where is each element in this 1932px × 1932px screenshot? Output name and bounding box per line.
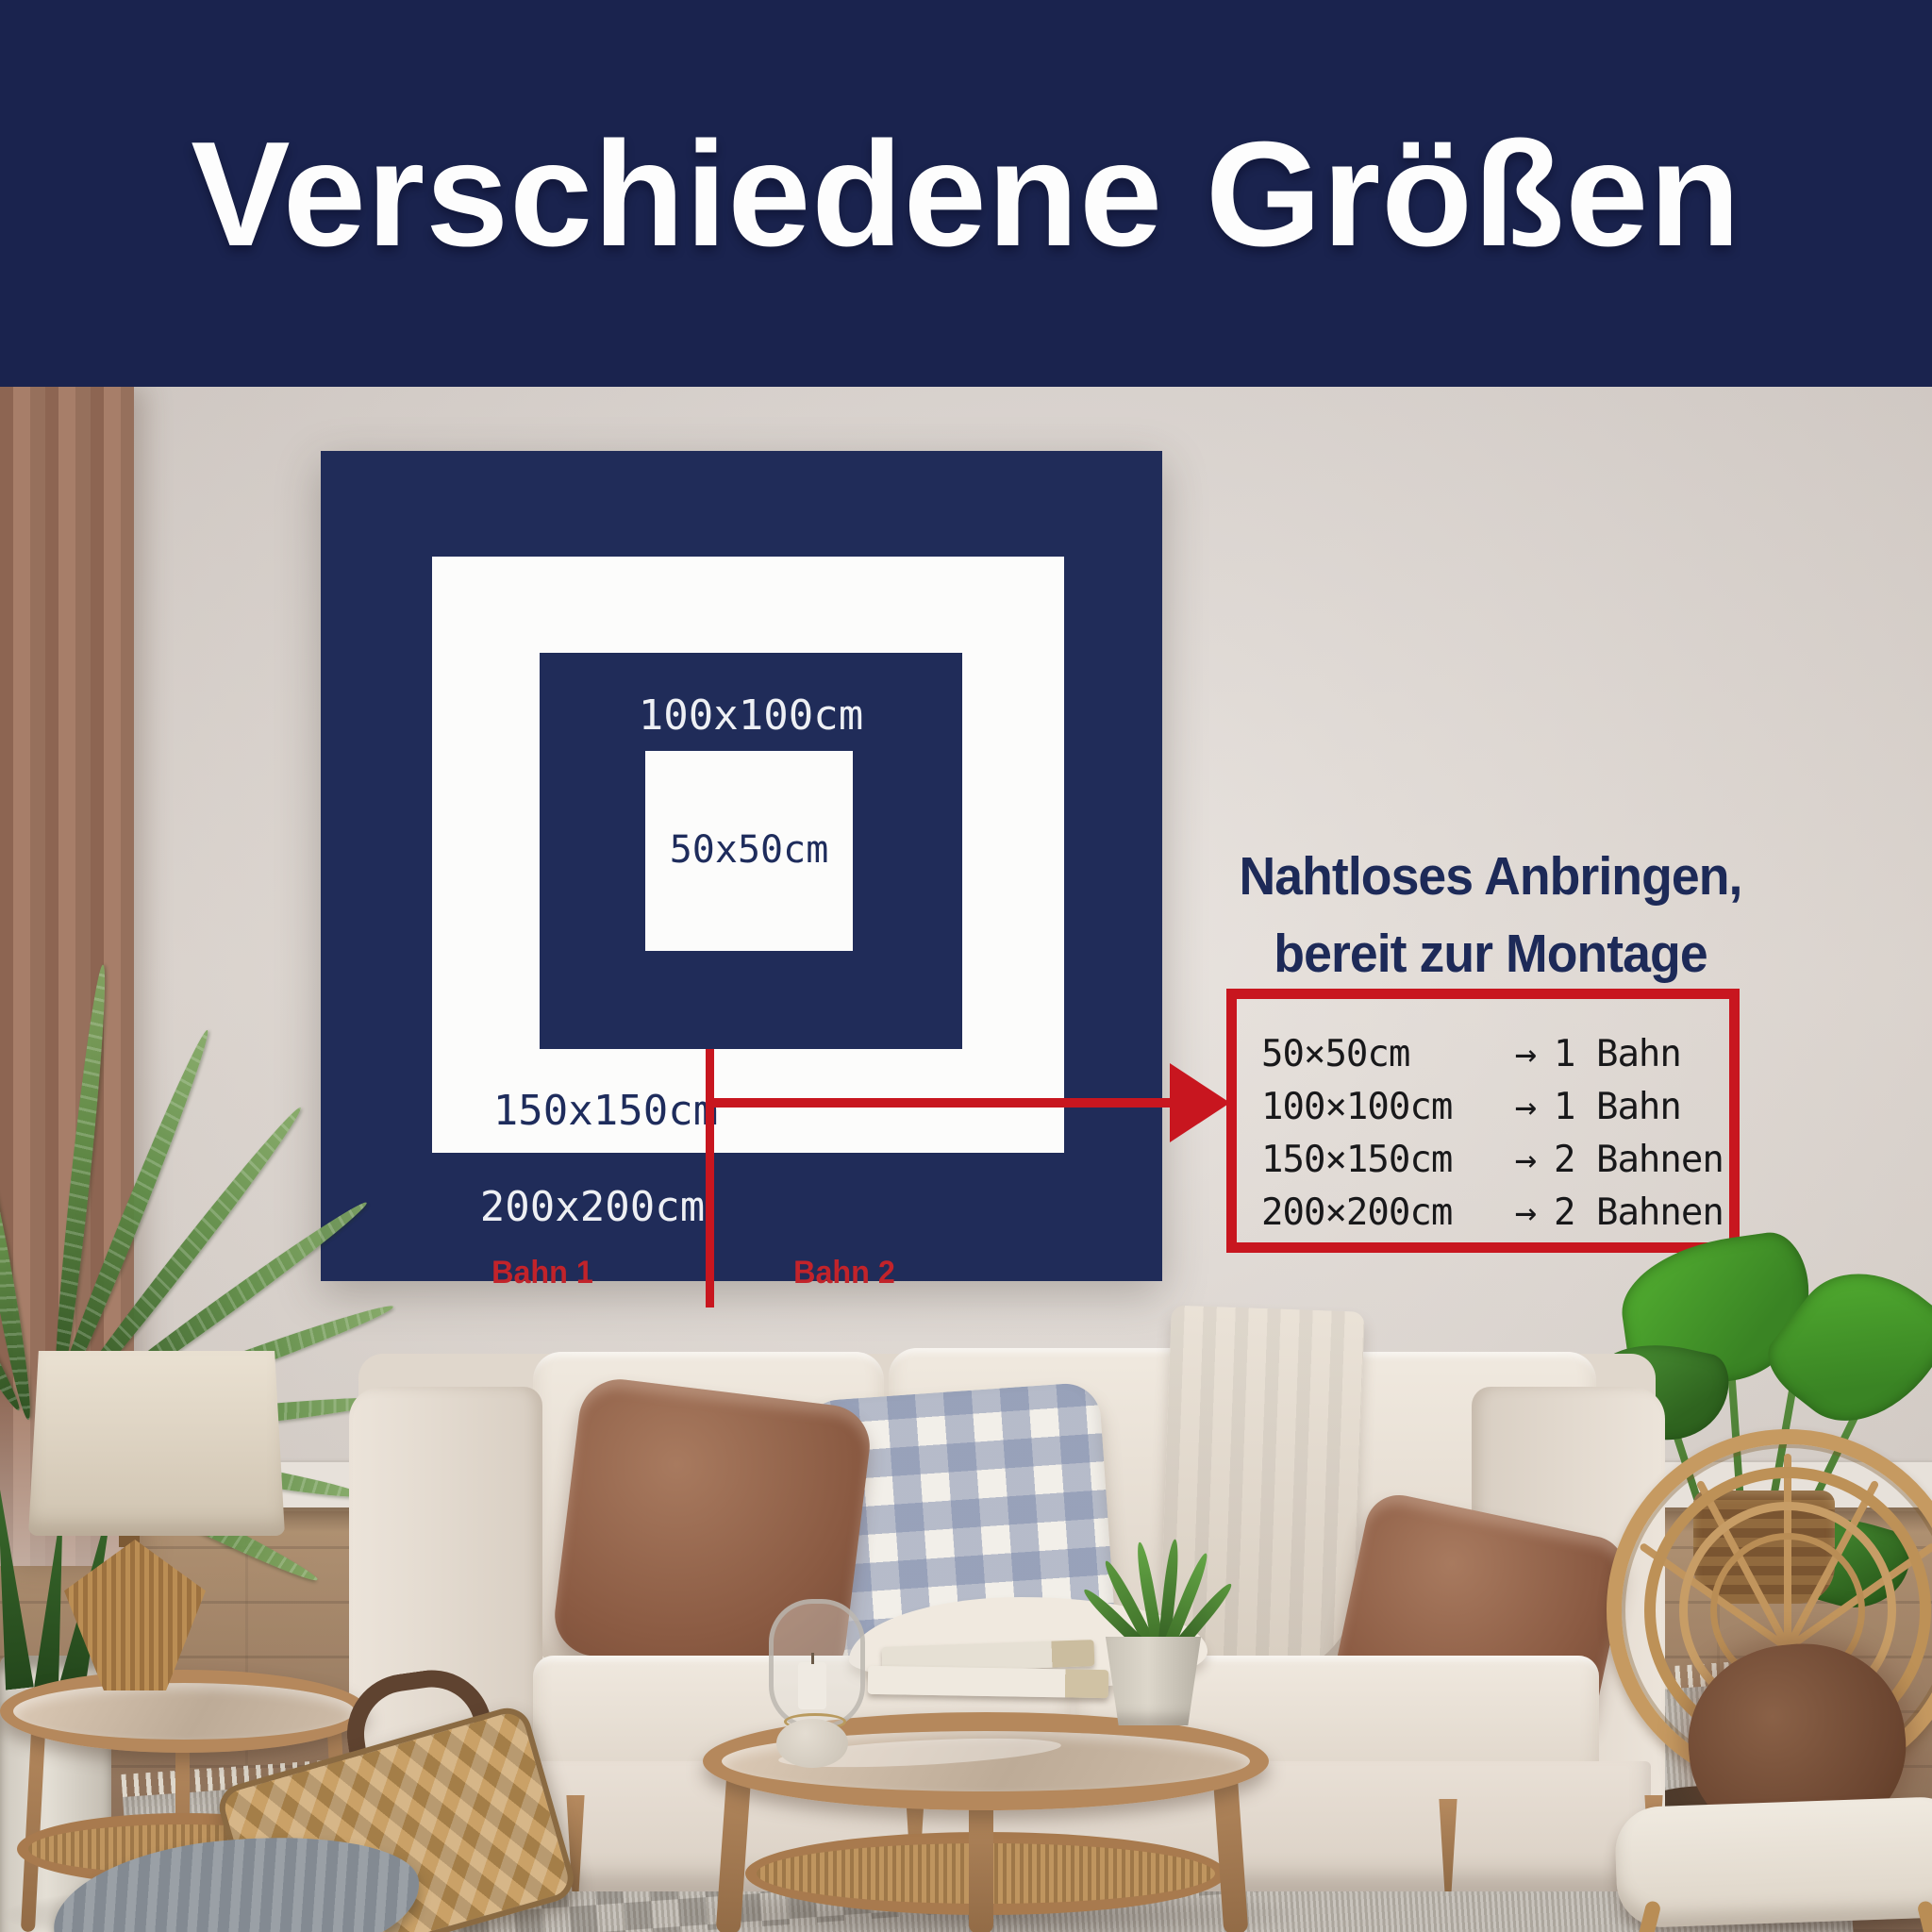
info-row-size: 150×150cm (1261, 1139, 1497, 1181)
arrow-icon: → (1497, 1033, 1554, 1075)
info-row-size: 50×50cm (1261, 1033, 1497, 1075)
info-heading-line2: bereit zur Montage (1203, 915, 1779, 992)
arrow-icon: → (1497, 1139, 1554, 1181)
info-box: 50×50cm → 1 Bahn 100×100cm → 1 Bahn 150×… (1226, 989, 1740, 1253)
candle (798, 1662, 826, 1709)
table-lamp (28, 1351, 292, 1696)
size-label-100: 100x100cm (540, 691, 962, 740)
info-row: 50×50cm → 1 Bahn (1261, 1027, 1729, 1080)
info-rows: 50×50cm → 1 Bahn 100×100cm → 1 Bahn 150×… (1237, 999, 1729, 1239)
page-title: Verschiedene Größen (0, 0, 1932, 387)
connector-line (706, 1098, 1174, 1108)
info-row-size: 200×200cm (1261, 1191, 1497, 1234)
red-arrow-icon (1170, 1063, 1230, 1142)
table-leg (21, 1711, 46, 1932)
candle-base (776, 1719, 848, 1768)
rattan-chair (1590, 1429, 1932, 1932)
info-row-result: 1 Bahn (1554, 1086, 1681, 1128)
info-heading-line1: Nahtloses Anbringen, (1203, 838, 1779, 915)
plant-pot-small (1099, 1637, 1207, 1725)
lamp-base (64, 1540, 206, 1690)
bahn2-label: Bahn 2 (750, 1255, 939, 1291)
bahn-divider-line (706, 1049, 714, 1307)
table-plant (1071, 1533, 1241, 1651)
info-row-result: 2 Bahnen (1554, 1139, 1724, 1181)
info-row-size: 100×100cm (1261, 1086, 1497, 1128)
arrow-icon: → (1497, 1086, 1554, 1128)
product-size-infographic: Verschiedene Größen 100x100cm 50x50cm 15… (0, 0, 1932, 1932)
candle-holder (769, 1599, 865, 1729)
candle-wick (811, 1653, 814, 1664)
info-heading: Nahtloses Anbringen, bereit zur Montage (1203, 838, 1779, 992)
info-row: 150×150cm → 2 Bahnen (1261, 1133, 1729, 1186)
lamp-shade (28, 1351, 285, 1536)
size-label-50: 50x50cm (645, 828, 853, 872)
info-row-result: 1 Bahn (1554, 1033, 1681, 1075)
book (868, 1666, 1108, 1698)
info-row: 100×100cm → 1 Bahn (1261, 1080, 1729, 1133)
coffee-table (693, 1547, 1274, 1932)
